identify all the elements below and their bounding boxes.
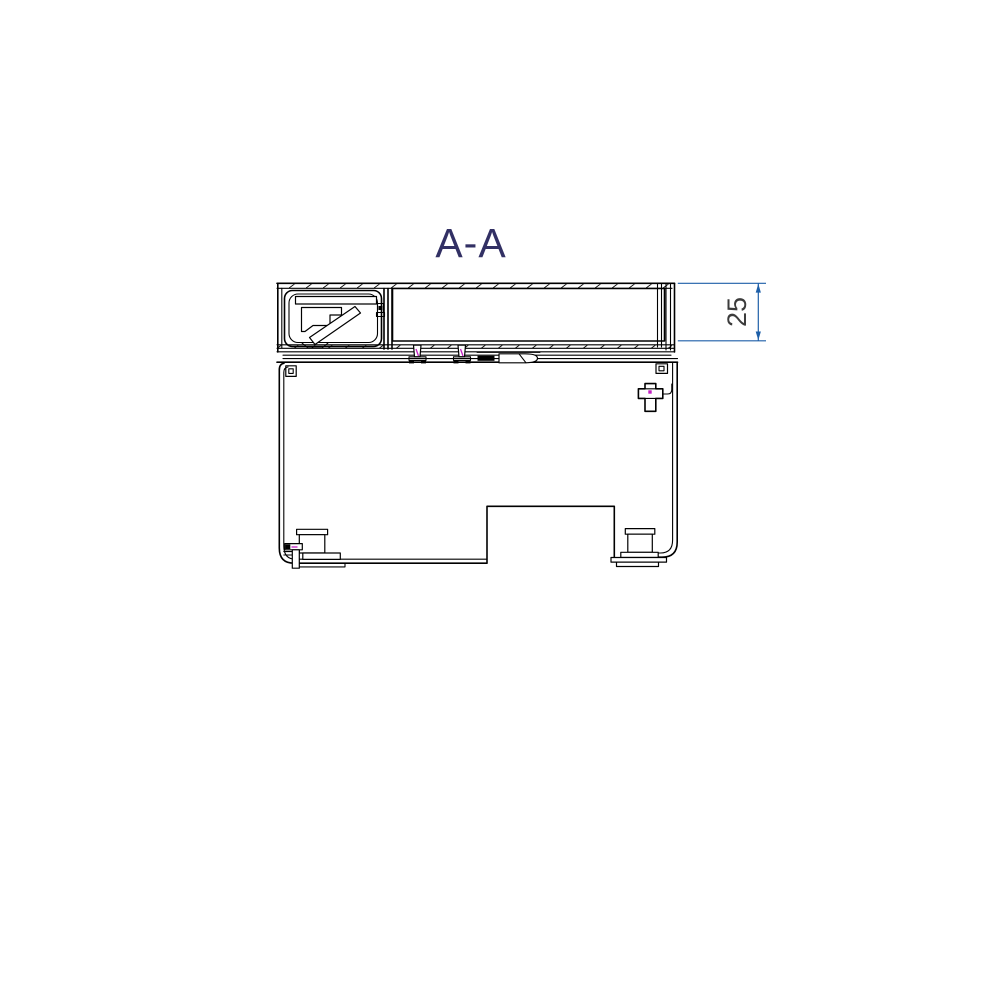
screw-base-right bbox=[466, 360, 471, 363]
hook-outline bbox=[656, 364, 668, 374]
foot-cap bbox=[297, 529, 328, 534]
section-view-label: A-A bbox=[435, 220, 506, 266]
dimension-value: 25 bbox=[722, 297, 752, 327]
clip-wall-connector bbox=[663, 384, 672, 394]
clip-pin bbox=[292, 550, 299, 568]
screw-base-left bbox=[454, 360, 459, 363]
foot-flange bbox=[621, 552, 658, 557]
latch-mechanism bbox=[296, 297, 385, 345]
dimension-arrow-up bbox=[756, 284, 761, 293]
section-view-drawing: A-A bbox=[0, 0, 1000, 1000]
left-foot bbox=[284, 529, 345, 568]
tray-main-cavity bbox=[393, 289, 665, 342]
clip-center-mark bbox=[648, 390, 651, 393]
latch-pin-dot bbox=[379, 306, 383, 310]
dimension-arrow-down bbox=[756, 332, 761, 341]
right-hook-tab bbox=[656, 364, 668, 374]
clip-block bbox=[285, 544, 290, 549]
slide-block bbox=[478, 356, 495, 361]
right-foot bbox=[611, 529, 667, 567]
slide-bullet-catch bbox=[499, 354, 538, 363]
foot-plate-narrow bbox=[617, 562, 659, 566]
right-wall-clip bbox=[638, 384, 671, 412]
screw-base-left bbox=[409, 360, 414, 363]
foot-body bbox=[299, 535, 325, 553]
body-outline-outer-left bbox=[279, 363, 614, 563]
foot-plate-wide bbox=[611, 558, 667, 563]
main-body-section bbox=[279, 363, 677, 563]
latch-slide-detail bbox=[477, 352, 540, 363]
foot-flange bbox=[303, 553, 341, 559]
cut-hatch-top-band bbox=[278, 284, 673, 288]
latch-top-bar bbox=[296, 297, 377, 305]
screw-base-right bbox=[421, 360, 426, 363]
foot-cap bbox=[625, 529, 655, 535]
foot-body bbox=[628, 534, 653, 552]
lid-compartment bbox=[285, 291, 385, 349]
drawing-canvas: A-A bbox=[0, 0, 1000, 1000]
clip-cross-body bbox=[638, 384, 662, 412]
compartment-right-wall bbox=[384, 288, 392, 349]
dimension-25: 25 bbox=[678, 283, 766, 341]
